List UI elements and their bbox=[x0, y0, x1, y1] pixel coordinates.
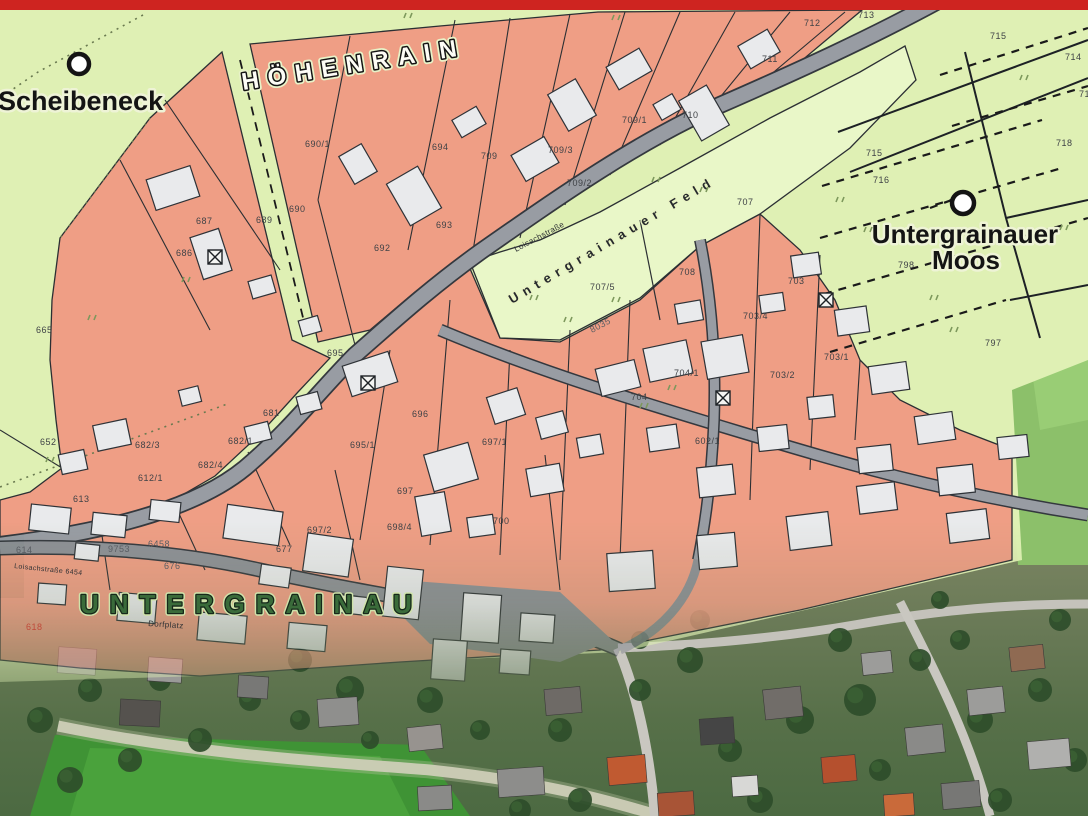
aerial-house bbox=[967, 686, 1006, 716]
moos-marker bbox=[952, 192, 974, 214]
parcel-number: 716 bbox=[873, 175, 890, 185]
building bbox=[303, 533, 354, 577]
untergrainauer-moos-2-label: Moos bbox=[932, 245, 1000, 275]
crossed-square-symbol bbox=[208, 250, 222, 264]
building bbox=[834, 306, 869, 336]
parcel-number: 703/2 bbox=[770, 370, 795, 380]
parcel-number: 698/4 bbox=[387, 522, 412, 532]
aerial-house bbox=[119, 699, 160, 727]
crossed-square-symbol bbox=[716, 391, 730, 405]
parcel-number: 686 bbox=[176, 248, 193, 258]
cadastral-layer bbox=[0, 0, 1088, 682]
building bbox=[701, 335, 749, 380]
parcel-number: 712 bbox=[804, 18, 821, 28]
parcel-number: 687 bbox=[196, 216, 213, 226]
parcel-number: 682/1 bbox=[228, 436, 253, 446]
parcel-number: 695/1 bbox=[350, 440, 375, 450]
aerial-tree-highlight bbox=[190, 730, 202, 742]
parcel-number: 697/1 bbox=[482, 437, 507, 447]
building bbox=[74, 543, 100, 561]
parcel-number: 693 bbox=[436, 220, 453, 230]
aerial-house bbox=[1027, 738, 1071, 770]
aerial-tree-highlight bbox=[952, 632, 962, 642]
parcel-number: 612/1 bbox=[138, 473, 163, 483]
aerial-house bbox=[607, 754, 647, 785]
parcel-number: 703/4 bbox=[743, 311, 768, 321]
parcel-number: 694 bbox=[432, 142, 449, 152]
building bbox=[757, 424, 789, 451]
aerial-house bbox=[861, 650, 893, 675]
parcel-number: 696 bbox=[412, 409, 429, 419]
building bbox=[29, 504, 71, 534]
parcel-number: 602/1 bbox=[695, 436, 720, 446]
parcel-number: 704 bbox=[631, 392, 648, 402]
building bbox=[937, 464, 976, 496]
aerial-house bbox=[883, 793, 914, 816]
parcel-number: 704/1 bbox=[674, 368, 699, 378]
parcel-number: 714 bbox=[1065, 52, 1082, 62]
aerial-tree-highlight bbox=[80, 680, 92, 692]
parcel-number: 703 bbox=[788, 276, 805, 286]
building bbox=[431, 639, 468, 681]
parcel-number: 614 bbox=[16, 545, 33, 555]
aerial-tree-highlight bbox=[570, 790, 582, 802]
aerial-tree-highlight bbox=[911, 651, 922, 662]
aerial-house bbox=[417, 785, 452, 811]
aerial-tree-highlight bbox=[511, 801, 522, 812]
crossed-square-symbol bbox=[361, 376, 375, 390]
building bbox=[791, 252, 822, 278]
scanned-map-page: 665652682/3682/4682/1681686687689690690/… bbox=[0, 0, 1088, 816]
aerial-house bbox=[905, 724, 946, 756]
aerial-house bbox=[237, 675, 268, 699]
parcel-number: 713 bbox=[858, 10, 875, 20]
aerial-house bbox=[821, 755, 857, 784]
parcel-number: 652 bbox=[40, 437, 57, 447]
parcel-number: 692 bbox=[374, 243, 391, 253]
building bbox=[519, 613, 555, 643]
parcel-number: 697 bbox=[397, 486, 414, 496]
building bbox=[576, 434, 603, 458]
building bbox=[786, 512, 832, 551]
parcel-number: 682/3 bbox=[135, 440, 160, 450]
aerial-house bbox=[497, 766, 545, 797]
building bbox=[868, 361, 910, 394]
aerial-tree-highlight bbox=[60, 770, 73, 783]
parcel-number: 689 bbox=[256, 215, 273, 225]
building bbox=[223, 504, 283, 545]
scheibeneck-label: Scheibeneck bbox=[0, 86, 164, 116]
parcel-number: 690/1 bbox=[305, 139, 330, 149]
building bbox=[287, 622, 327, 651]
aerial-tree-highlight bbox=[871, 761, 882, 772]
scheibeneck-marker bbox=[69, 54, 89, 74]
parcel-number: 677 bbox=[276, 544, 293, 554]
untergrainau-label: UNTERGRAINAU bbox=[80, 589, 423, 619]
aerial-tree-highlight bbox=[339, 679, 353, 693]
aerial-house bbox=[941, 780, 981, 809]
parcel-number: 9753 bbox=[108, 544, 130, 554]
parcel-number: 709/1 bbox=[622, 115, 647, 125]
aerial-house bbox=[699, 717, 735, 745]
building bbox=[674, 300, 703, 324]
building bbox=[857, 444, 894, 473]
parcel-number: 798 bbox=[898, 260, 915, 270]
parcel-number: 690 bbox=[289, 204, 306, 214]
parcel-number: 697/2 bbox=[307, 525, 332, 535]
parcel-number: 710 bbox=[682, 110, 699, 120]
parcel-number: 709 bbox=[481, 151, 498, 161]
aerial-tree-highlight bbox=[550, 720, 562, 732]
aerial-tree-highlight bbox=[292, 712, 302, 722]
parcel-number: 718 bbox=[1056, 138, 1073, 148]
aerial-tree-highlight bbox=[30, 710, 43, 723]
building bbox=[526, 463, 564, 496]
red-top-bar bbox=[0, 0, 1088, 10]
building bbox=[91, 512, 127, 537]
building bbox=[646, 424, 679, 452]
building bbox=[259, 564, 291, 588]
parcel-number: 709/3 bbox=[548, 145, 573, 155]
parcel-number: 618 bbox=[26, 622, 43, 632]
aerial-tree-highlight bbox=[1051, 611, 1062, 622]
building bbox=[460, 593, 501, 644]
aerial-tree-highlight bbox=[680, 650, 693, 663]
aerial-house bbox=[407, 724, 443, 751]
aerial-tree-highlight bbox=[830, 630, 842, 642]
parcel-number: 703/1 bbox=[824, 352, 849, 362]
aerial-house bbox=[763, 686, 804, 720]
aerial-tree-highlight bbox=[472, 722, 482, 732]
parcel-number: 700 bbox=[493, 516, 510, 526]
aerial-house bbox=[317, 697, 359, 728]
aerial-tree-highlight bbox=[847, 687, 863, 703]
parcel-number: 6458 bbox=[148, 539, 170, 549]
building bbox=[997, 434, 1029, 459]
building bbox=[467, 514, 496, 537]
parcel-number: 711 bbox=[762, 54, 778, 64]
cadastral-aerial-map: 665652682/3682/4682/1681686687689690690/… bbox=[0, 0, 1088, 816]
crossed-square-symbol bbox=[819, 293, 833, 307]
parcel-number: 682/4 bbox=[198, 460, 223, 470]
building bbox=[499, 649, 531, 675]
parcel-number: 665 bbox=[36, 325, 53, 335]
building bbox=[946, 509, 989, 544]
parcel-number: 676 bbox=[164, 561, 181, 571]
building bbox=[607, 550, 656, 591]
parcel-number: 708 bbox=[679, 267, 696, 277]
building bbox=[37, 583, 66, 605]
aerial-tree-highlight bbox=[420, 690, 433, 703]
aerial-tree-highlight bbox=[120, 750, 132, 762]
building bbox=[697, 464, 736, 498]
building bbox=[914, 411, 956, 444]
building bbox=[807, 395, 835, 420]
aerial-house bbox=[731, 775, 758, 797]
aerial-house bbox=[1009, 644, 1045, 671]
aerial-tree-highlight bbox=[990, 790, 1002, 802]
building bbox=[697, 532, 738, 569]
aerial-tree-highlight bbox=[1030, 680, 1042, 692]
aerial-house bbox=[544, 686, 582, 715]
parcel-number: 797 bbox=[985, 338, 1002, 348]
aerial-tree-highlight bbox=[933, 593, 942, 602]
parcel-number: 715 bbox=[990, 31, 1007, 41]
parcel-number: 613 bbox=[73, 494, 90, 504]
parcel-number: 715 bbox=[866, 148, 883, 158]
aerial-tree-highlight bbox=[363, 733, 372, 742]
building bbox=[415, 492, 451, 537]
aerial-tree-highlight bbox=[631, 681, 642, 692]
building bbox=[856, 482, 897, 514]
building bbox=[149, 499, 181, 522]
parcel-number: 707/5 bbox=[590, 282, 615, 292]
parcel-number: 695 bbox=[327, 348, 344, 358]
parcel-number: 709/2 bbox=[567, 178, 592, 188]
parcel-number: 719 bbox=[1079, 89, 1088, 99]
parcel-number: 681 bbox=[263, 408, 280, 418]
parcel-number: 707 bbox=[737, 197, 754, 207]
aerial-house bbox=[657, 791, 695, 816]
